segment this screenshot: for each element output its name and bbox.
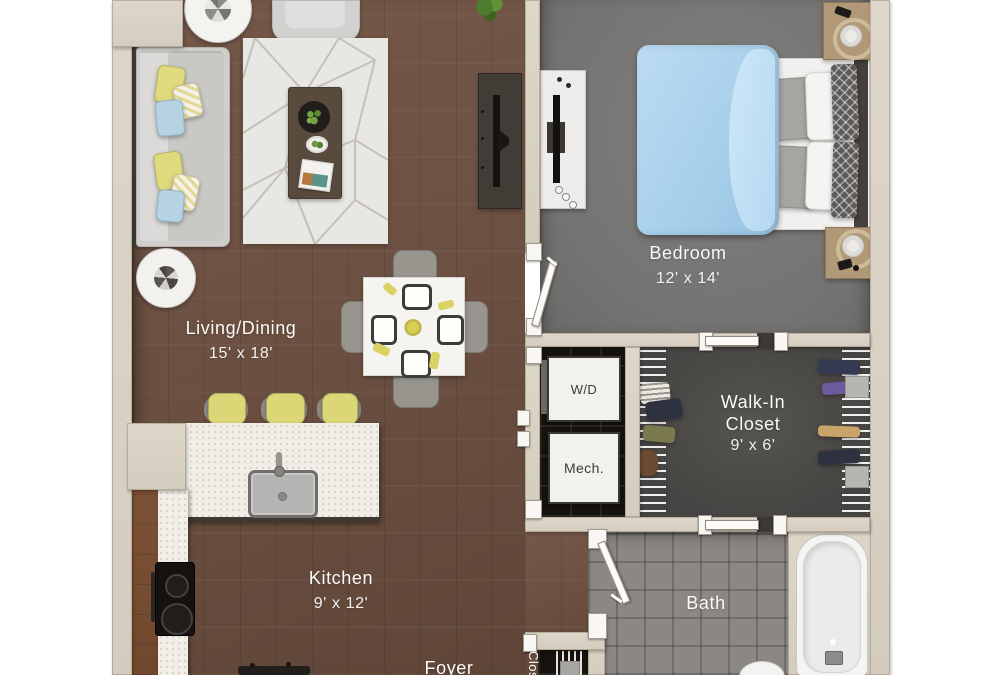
duvet-fold [729, 49, 775, 231]
throw-pillow-blue-2 [156, 189, 186, 223]
hanging-clothes [818, 449, 861, 465]
console-knob [481, 137, 484, 140]
decor-plant-small [306, 136, 328, 153]
kitchen-dims: 9' x 12' [309, 591, 373, 616]
laundry-label: W/D [571, 382, 597, 397]
handbag [638, 450, 658, 476]
wall-cap [525, 500, 542, 519]
wall-bedroom-left [525, 0, 540, 253]
tv-console-living [478, 73, 522, 209]
nightstand-gadget [853, 265, 859, 271]
wall-bedroom-bottom [525, 333, 870, 347]
lamp-shade [842, 235, 864, 257]
kitchen-sink [248, 470, 318, 518]
speaker-dot [569, 201, 577, 209]
tv-mount [499, 130, 509, 152]
bath-label: Bath [686, 591, 725, 616]
living-dining-dims: 15' x 18' [186, 341, 297, 366]
lamp-shade [840, 25, 862, 47]
throw-pillow-blue [154, 99, 185, 137]
wall-right [870, 0, 890, 675]
walkin-closet-label: Walk-In Closet 9' x 6' [721, 391, 786, 457]
speaker-dot [566, 83, 571, 88]
bedroom-dims: 12' x 14' [649, 266, 726, 291]
entry-bench [238, 666, 310, 675]
tub-drain [830, 639, 836, 645]
speaker-dot [562, 193, 570, 201]
wall-cap [588, 613, 607, 639]
magazine [298, 159, 334, 192]
kitchen-label: Kitchen 9' x 12' [309, 566, 373, 616]
bar-stool-yellow [266, 393, 305, 425]
decor-bowl [298, 101, 330, 133]
tv-screen-living [493, 95, 500, 187]
bowl-greens [305, 108, 323, 126]
bench-knob [286, 662, 291, 667]
console-knob [481, 166, 484, 169]
bifold-door-mark [517, 431, 530, 447]
entry-closet-label: Closet [526, 651, 541, 675]
speaker-dot [557, 77, 562, 82]
walkin-sliding-door-top [705, 336, 759, 346]
hanging-clothes [818, 425, 860, 437]
wall-cap [526, 347, 542, 364]
wall-cap [526, 243, 542, 261]
placemat [437, 315, 464, 345]
wall-top-left-block [112, 0, 183, 47]
wall-laundry-right [625, 347, 640, 517]
console-knob [481, 110, 484, 113]
cooktop [155, 562, 195, 636]
armchair-cushion [285, 1, 345, 28]
foyer-label: Foyer [424, 656, 473, 675]
washer-dryer-unit: W/D [547, 356, 621, 422]
walkin-dims: 9' x 6' [721, 435, 786, 457]
tv-screen-bedroom [553, 95, 560, 183]
walkin-name-line2: Closet [721, 413, 786, 435]
placemat [371, 315, 397, 345]
closet-doorway-gap-2 [757, 517, 773, 532]
cooktop-handle [151, 572, 155, 622]
faucet-head [274, 466, 285, 477]
wall-pantry-block [127, 423, 186, 490]
plant-leaves [310, 139, 324, 150]
armchair [272, 0, 360, 42]
placemat [402, 284, 432, 310]
sink-drain [278, 492, 287, 501]
bar-stool-yellow [208, 393, 246, 425]
bathtub [796, 534, 868, 675]
walkin-sliding-door-bottom [705, 520, 759, 530]
bedroom-label: Bedroom 12' x 14' [649, 241, 726, 291]
hanging-clothes [642, 425, 675, 444]
closet-shelf-box [845, 466, 869, 488]
mech-unit: Mech. [548, 432, 620, 504]
table-centerpiece [404, 319, 422, 336]
side-table-decor-2 [154, 266, 178, 290]
closet-doorway-gap [757, 333, 774, 347]
side-table-decor [205, 0, 231, 22]
magazine-photo [302, 172, 328, 187]
entry-closet-box [560, 661, 580, 675]
burner [161, 603, 193, 635]
dining-chair-bottom [393, 374, 439, 408]
living-dining-label: Living/Dining 15' x 18' [186, 316, 297, 366]
speaker-dot [555, 186, 563, 194]
tub-faucet [825, 651, 843, 665]
bench-knob [250, 663, 255, 668]
wall-cap [774, 332, 788, 351]
side-table-bottom [136, 248, 196, 308]
living-dining-name: Living/Dining [186, 316, 297, 341]
bedroom-name: Bedroom [649, 241, 726, 266]
duvet [637, 45, 779, 235]
pillow-accent-patterned [831, 142, 860, 219]
hanging-clothes [818, 359, 861, 375]
kitchen-name: Kitchen [309, 566, 373, 591]
wall-cap [773, 515, 787, 535]
wall-cap [523, 634, 537, 652]
pillow-accent-patterned [831, 64, 860, 141]
closet-shelf-box [845, 376, 869, 398]
wall-left [112, 0, 132, 675]
burner [165, 574, 189, 598]
floor-plan: W/D Mech. Living/Dining 15' x [0, 0, 1000, 675]
mech-label: Mech. [564, 460, 604, 476]
bar-stool-yellow [322, 393, 358, 425]
media-console-bedroom [540, 70, 586, 209]
walkin-name-line1: Walk-In [721, 391, 786, 413]
bifold-door-mark [517, 410, 530, 426]
placemat [401, 350, 431, 378]
